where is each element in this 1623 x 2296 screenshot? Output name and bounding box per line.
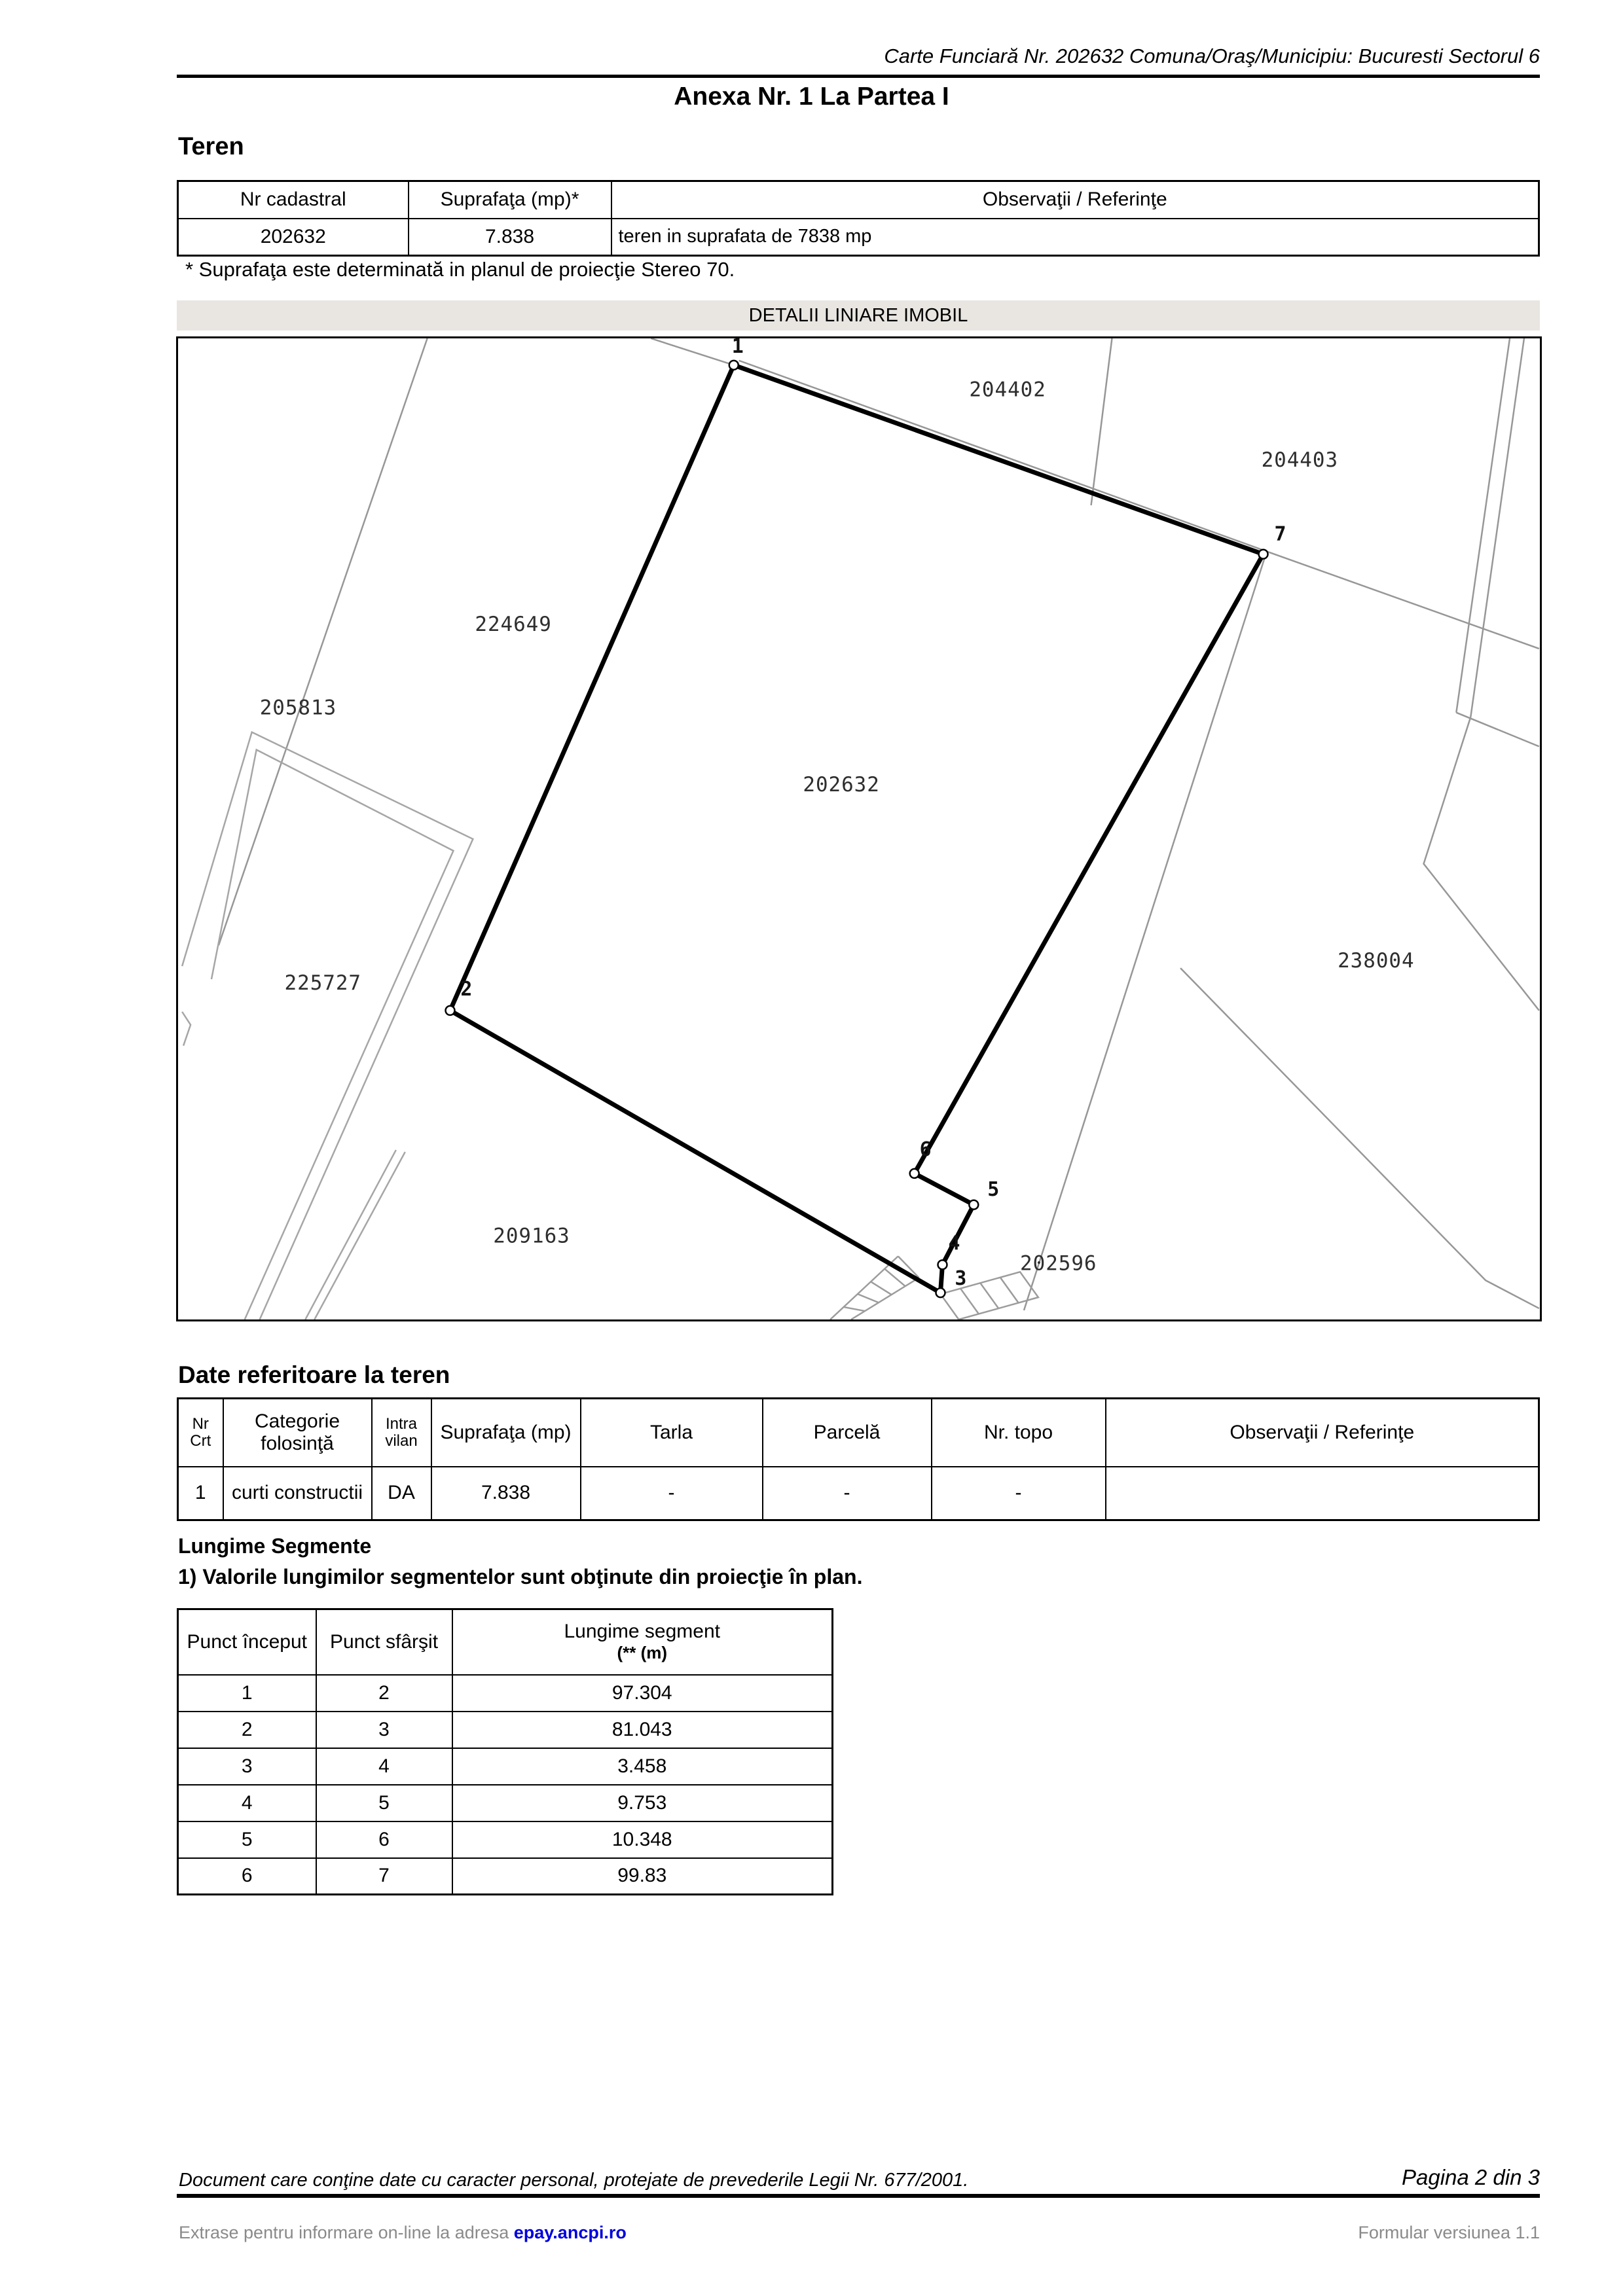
vertex-label-2: 2 bbox=[460, 978, 472, 1001]
segment-end: 7 bbox=[316, 1858, 452, 1895]
vertex-label-4: 4 bbox=[948, 1232, 960, 1255]
vertex-label-7: 7 bbox=[1274, 523, 1286, 546]
teren-table-data-row: 202632 7.838 teren in suprafata de 7838 … bbox=[178, 219, 1539, 256]
tarla-value: - bbox=[581, 1467, 763, 1520]
col-tarla: Tarla bbox=[581, 1399, 763, 1467]
parcel-label-202632: 202632 bbox=[803, 773, 879, 797]
segments-header-row: Punct început Punct sfârşit Lungime segm… bbox=[178, 1609, 833, 1675]
nr-crt-value: 1 bbox=[178, 1467, 223, 1520]
header-rule bbox=[177, 75, 1540, 78]
parcel-label-204402: 204402 bbox=[969, 378, 1046, 402]
date-teren-heading: Date referitoare la teren bbox=[178, 1361, 450, 1389]
segment-start: 1 bbox=[178, 1675, 316, 1712]
obs-ref-value bbox=[1106, 1467, 1539, 1520]
vertex-label-5: 5 bbox=[987, 1178, 999, 1201]
stereo70-footnote: * Suprafaţa este determinată in planul d… bbox=[185, 258, 735, 281]
segment-row: 459.753 bbox=[178, 1785, 833, 1821]
col-obs-ref: Observaţii / Referinţe bbox=[1106, 1399, 1539, 1467]
parcel-label-204403: 204403 bbox=[1262, 448, 1338, 472]
segment-start: 4 bbox=[178, 1785, 316, 1821]
segments-table: Punct început Punct sfârşit Lungime segm… bbox=[177, 1608, 833, 1895]
observatii-value: teren in suprafata de 7838 mp bbox=[611, 219, 1539, 256]
lungime-unit: (** (m) bbox=[457, 1643, 828, 1663]
parcel-label-209163: 209163 bbox=[493, 1224, 570, 1247]
categorie-value: curti constructii bbox=[223, 1467, 372, 1520]
parcel-label-225727: 225727 bbox=[285, 971, 361, 995]
vertex-marker-2 bbox=[446, 1006, 455, 1015]
nr-cadastral-value: 202632 bbox=[178, 219, 409, 256]
col-punct-sfarsit: Punct sfârşit bbox=[316, 1609, 452, 1675]
segment-start: 3 bbox=[178, 1748, 316, 1785]
segment-row: 343.458 bbox=[178, 1748, 833, 1785]
date-teren-table: Nr Crt Categorie folosinţă Intra vilan S… bbox=[177, 1397, 1540, 1521]
vertex-label-1: 1 bbox=[732, 338, 744, 358]
teren-table: Nr cadastral Suprafaţa (mp)* Observaţii … bbox=[177, 180, 1540, 257]
date-table-header-row: Nr Crt Categorie folosinţă Intra vilan S… bbox=[178, 1399, 1539, 1467]
col-suprafata: Suprafaţa (mp)* bbox=[409, 181, 611, 219]
nr-topo-value: - bbox=[932, 1467, 1106, 1520]
segment-length: 99.83 bbox=[452, 1858, 833, 1895]
vertex-marker-7 bbox=[1259, 550, 1268, 559]
detalii-liniare-bar: DETALII LINIARE IMOBIL bbox=[177, 300, 1540, 331]
lungime-note: 1) Valorile lungimilor segmentelor sunt … bbox=[178, 1565, 862, 1589]
segment-row: 5610.348 bbox=[178, 1821, 833, 1858]
hatched-ramp-left bbox=[830, 1256, 919, 1319]
lungime-segmente-heading: Lungime Segmente bbox=[178, 1534, 371, 1558]
vertex-marker-4 bbox=[938, 1260, 947, 1269]
segment-start: 5 bbox=[178, 1821, 316, 1858]
lungime-label: Lungime segment bbox=[564, 1621, 720, 1642]
segment-length: 81.043 bbox=[452, 1712, 833, 1748]
col-nr-topo: Nr. topo bbox=[932, 1399, 1106, 1467]
col-intra-vilan: Intra vilan bbox=[372, 1399, 431, 1467]
vertex-marker-6 bbox=[910, 1169, 919, 1178]
carte-funciara-header: Carte Funciară Nr. 202632 Comuna/Oraş/Mu… bbox=[177, 45, 1540, 68]
segment-row: 6799.83 bbox=[178, 1858, 833, 1895]
col-suprafata-mp: Suprafaţa (mp) bbox=[431, 1399, 581, 1467]
col-categorie: Categorie folosinţă bbox=[223, 1399, 372, 1467]
parcela-value: - bbox=[763, 1467, 932, 1520]
segment-length: 9.753 bbox=[452, 1785, 833, 1821]
col-punct-inceput: Punct început bbox=[178, 1609, 316, 1675]
vertex-markers: 1234567 bbox=[446, 338, 1286, 1297]
suprafata-value: 7.838 bbox=[409, 219, 611, 256]
segment-end: 4 bbox=[316, 1748, 452, 1785]
vertex-label-6: 6 bbox=[920, 1138, 932, 1161]
col-parcela: Parcelă bbox=[763, 1399, 932, 1467]
vertex-marker-3 bbox=[936, 1288, 945, 1297]
parcel-label-224649: 224649 bbox=[475, 613, 551, 636]
page-indicator: Pagina 2 din 3 bbox=[177, 2165, 1540, 2190]
cadastral-map: 1234567 20440220440320581322464920263222… bbox=[176, 336, 1542, 1321]
teren-table-header-row: Nr cadastral Suprafaţa (mp)* Observaţii … bbox=[178, 181, 1539, 219]
date-table-data-row: 1 curti constructii DA 7.838 - - - bbox=[178, 1467, 1539, 1520]
document-page: Carte Funciară Nr. 202632 Comuna/Oraş/Mu… bbox=[0, 0, 1623, 2296]
segment-length: 3.458 bbox=[452, 1748, 833, 1785]
teren-heading: Teren bbox=[178, 133, 244, 161]
neighbor-parcel-lines bbox=[219, 338, 1539, 1310]
segment-end: 2 bbox=[316, 1675, 452, 1712]
parcel-label-202596: 202596 bbox=[1020, 1251, 1097, 1275]
page-title: Anexa Nr. 1 La Partea I bbox=[0, 82, 1623, 111]
segment-end: 5 bbox=[316, 1785, 452, 1821]
road-and-building-lines bbox=[182, 732, 473, 1319]
segment-end: 6 bbox=[316, 1821, 452, 1858]
segment-row: 2381.043 bbox=[178, 1712, 833, 1748]
segment-length: 97.304 bbox=[452, 1675, 833, 1712]
parcel-label-238004: 238004 bbox=[1338, 949, 1414, 973]
vertex-marker-1 bbox=[729, 361, 739, 370]
segment-row: 1297.304 bbox=[178, 1675, 833, 1712]
segment-length: 10.348 bbox=[452, 1821, 833, 1858]
parcel-labels: 2044022044032058132246492026322257272380… bbox=[260, 378, 1415, 1276]
col-nr-crt: Nr Crt bbox=[178, 1399, 223, 1467]
col-observatii: Observaţii / Referinţe bbox=[611, 181, 1539, 219]
vertex-marker-5 bbox=[969, 1200, 978, 1210]
cadastral-map-svg: 1234567 20440220440320581322464920263222… bbox=[178, 338, 1540, 1319]
col-lungime-segment: Lungime segment (** (m) bbox=[452, 1609, 833, 1675]
footer-rule bbox=[177, 2194, 1540, 2198]
parcel-label-205813: 205813 bbox=[260, 696, 337, 720]
vertex-label-3: 3 bbox=[955, 1267, 966, 1290]
form-version: Formular versiunea 1.1 bbox=[177, 2223, 1540, 2243]
col-nr-cadastral: Nr cadastral bbox=[178, 181, 409, 219]
intra-vilan-value: DA bbox=[372, 1467, 431, 1520]
segment-end: 3 bbox=[316, 1712, 452, 1748]
parcel-202632-outline bbox=[450, 365, 1263, 1293]
suprafata-mp-value: 7.838 bbox=[431, 1467, 581, 1520]
segment-start: 2 bbox=[178, 1712, 316, 1748]
segment-start: 6 bbox=[178, 1858, 316, 1895]
